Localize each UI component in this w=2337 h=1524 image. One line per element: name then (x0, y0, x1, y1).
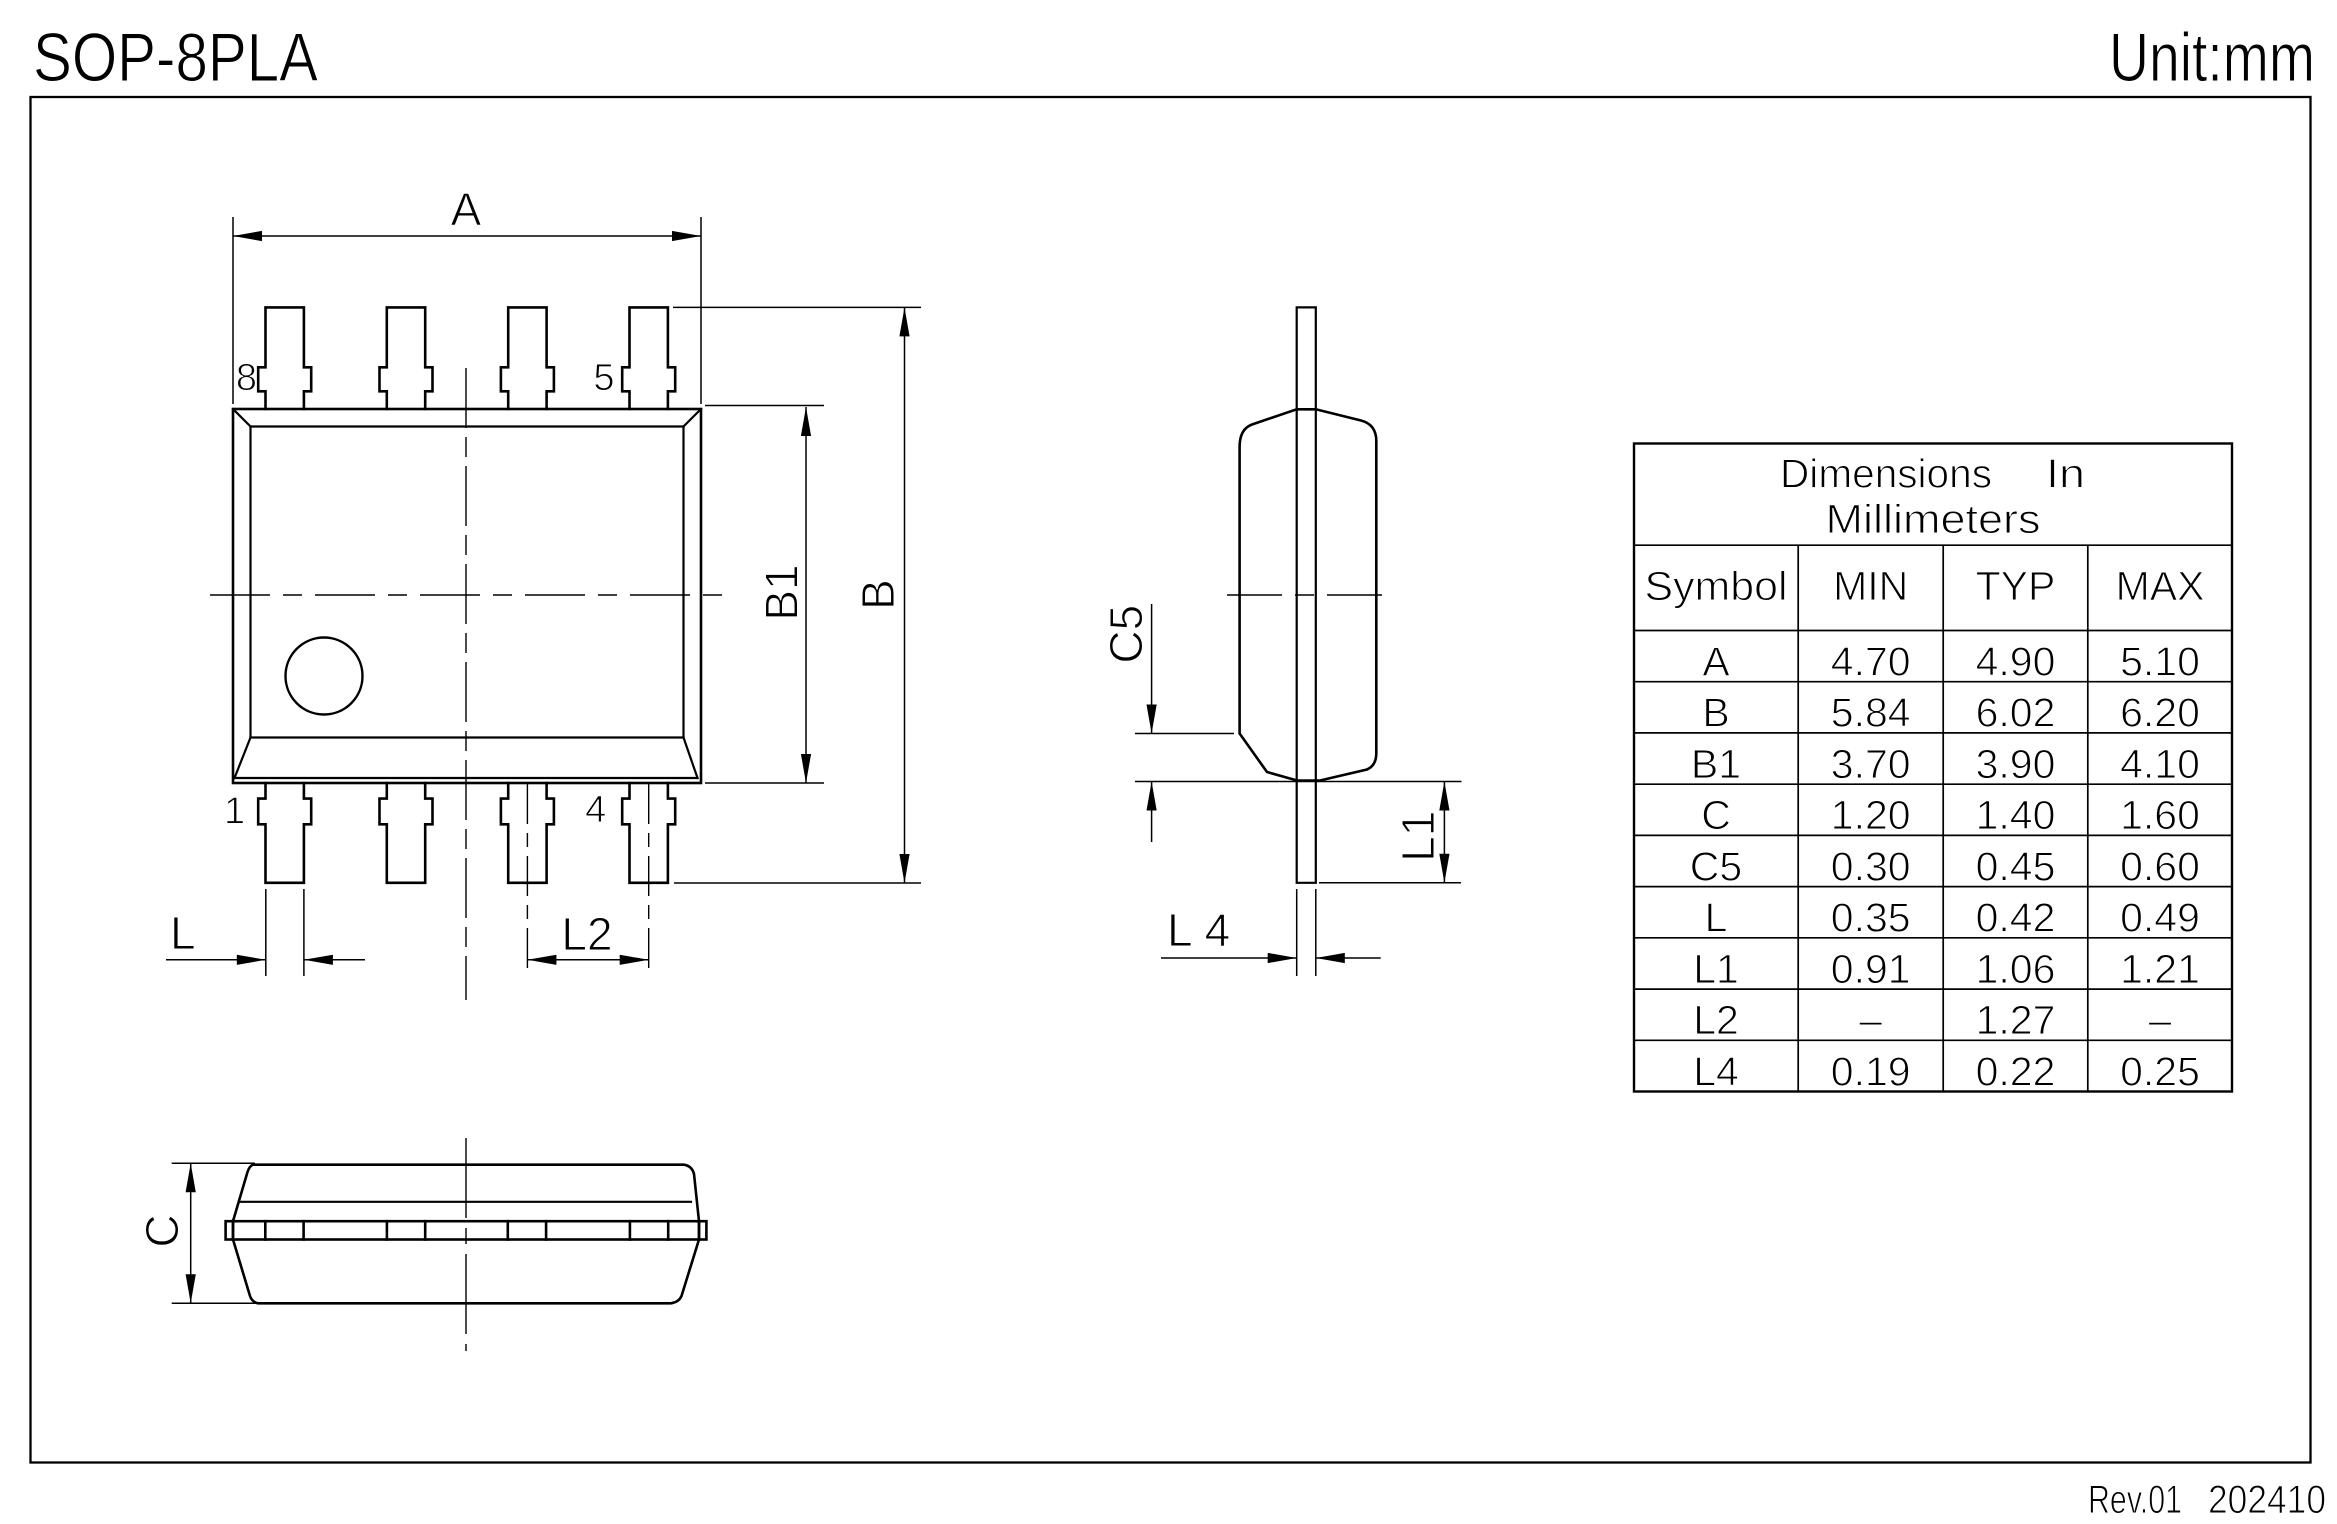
svg-text:B: B (1702, 690, 1729, 736)
svg-text:B1: B1 (756, 564, 808, 620)
svg-text:1.60: 1.60 (2120, 792, 2200, 838)
svg-text:6.20: 6.20 (2120, 690, 2200, 736)
svg-text:L: L (1705, 895, 1728, 941)
svg-text:1: 1 (224, 790, 245, 832)
svg-text:0.91: 0.91 (1831, 946, 1911, 992)
svg-text:MAX: MAX (2116, 563, 2205, 609)
svg-text:B1: B1 (1691, 741, 1741, 787)
svg-text:L4: L4 (1693, 1048, 1739, 1094)
svg-text:–: – (2149, 997, 2172, 1043)
svg-text:Symbol: Symbol (1645, 563, 1788, 609)
svg-text:0.35: 0.35 (1831, 895, 1911, 941)
svg-text:0.22: 0.22 (1976, 1048, 2056, 1094)
svg-text:L4: L4 (1167, 904, 1242, 956)
svg-text:L1: L1 (1392, 811, 1444, 862)
svg-text:C5: C5 (1690, 843, 1742, 889)
svg-text:4.10: 4.10 (2120, 741, 2200, 787)
svg-text:0.25: 0.25 (2120, 1048, 2200, 1094)
svg-text:0.49: 0.49 (2120, 895, 2200, 941)
svg-text:4.70: 4.70 (1831, 639, 1911, 685)
svg-text:3.90: 3.90 (1976, 741, 2056, 787)
svg-text:1.20: 1.20 (1831, 792, 1911, 838)
svg-text:C: C (136, 1214, 188, 1247)
svg-text:5.10: 5.10 (2120, 639, 2200, 685)
svg-text:0.45: 0.45 (1976, 843, 2056, 889)
svg-text:A: A (1702, 639, 1730, 685)
svg-text:Unit:mm: Unit:mm (2109, 19, 2315, 96)
svg-text:SOP-8PLA: SOP-8PLA (33, 19, 318, 96)
svg-text:In: In (2046, 451, 2085, 497)
svg-text:0.19: 0.19 (1831, 1048, 1911, 1094)
svg-text:6.02: 6.02 (1976, 690, 2056, 736)
svg-text:1.27: 1.27 (1976, 997, 2056, 1043)
svg-text:MIN: MIN (1833, 563, 1908, 609)
svg-text:4.90: 4.90 (1976, 639, 2056, 685)
svg-text:Dimensions: Dimensions (1780, 451, 1992, 497)
svg-text:TYP: TYP (1976, 563, 2056, 609)
svg-text:202410: 202410 (2208, 1478, 2326, 1522)
svg-text:8: 8 (236, 357, 257, 399)
svg-text:B: B (852, 579, 904, 610)
svg-text:1.40: 1.40 (1976, 792, 2056, 838)
svg-text:3.70: 3.70 (1831, 741, 1911, 787)
svg-text:0.60: 0.60 (2120, 843, 2200, 889)
svg-text:L1: L1 (1693, 946, 1739, 992)
svg-text:5: 5 (593, 357, 614, 399)
svg-text:Millimeters: Millimeters (1826, 496, 2041, 542)
svg-text:0.30: 0.30 (1831, 843, 1911, 889)
svg-text:0.42: 0.42 (1976, 895, 2056, 941)
svg-text:Rev.01: Rev.01 (2088, 1478, 2182, 1522)
svg-text:5.84: 5.84 (1831, 690, 1911, 736)
svg-text:L2: L2 (561, 908, 612, 960)
svg-text:–: – (1859, 997, 1882, 1043)
svg-text:A: A (451, 184, 482, 236)
svg-text:C5: C5 (1100, 605, 1152, 664)
svg-text:1.21: 1.21 (2120, 946, 2200, 992)
svg-text:L2: L2 (1693, 997, 1739, 1043)
svg-text:C: C (1701, 792, 1731, 838)
svg-text:L: L (170, 907, 196, 959)
svg-text:4: 4 (585, 789, 606, 831)
svg-text:1.06: 1.06 (1976, 946, 2056, 992)
